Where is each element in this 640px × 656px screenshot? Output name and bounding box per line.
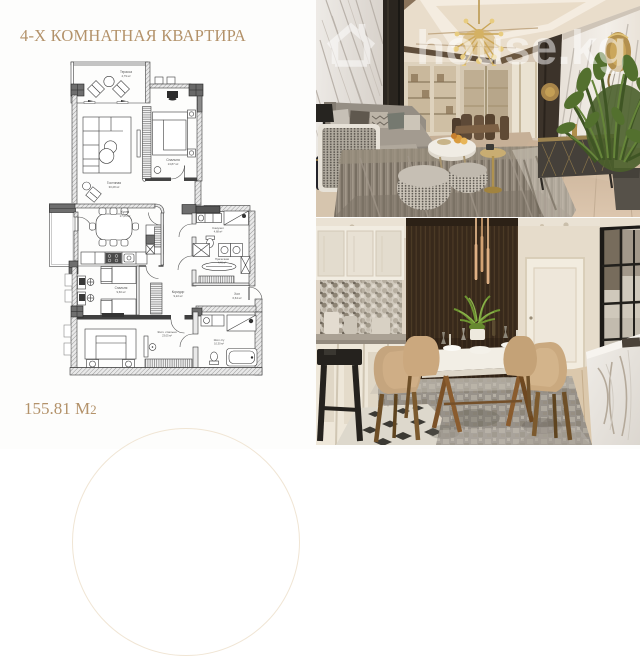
svg-text:house.kg: house.kg — [416, 22, 627, 75]
svg-text:Жил. спальня: Жил. спальня — [157, 330, 177, 334]
svg-text:4,68 м²: 4,68 м² — [214, 230, 223, 234]
svg-text:17,65 м²: 17,65 м² — [120, 214, 131, 218]
svg-text:13,87 м²: 13,87 м² — [168, 162, 179, 166]
svg-text:4,46 м²: 4,46 м² — [218, 261, 226, 264]
svg-text:9,22 м²: 9,22 м² — [173, 294, 182, 298]
svg-text:Прачечная: Прачечная — [215, 257, 230, 261]
svg-text:Жил с/у: Жил с/у — [214, 338, 225, 342]
svg-text:4,79 м²: 4,79 м² — [121, 74, 130, 78]
svg-text:6,64 м²: 6,64 м² — [232, 296, 241, 300]
svg-text:Санузел: Санузел — [212, 226, 224, 230]
svg-text:30,28 м²: 30,28 м² — [109, 185, 120, 189]
svg-text:23,05 м²: 23,05 м² — [162, 334, 172, 338]
svg-text:9,60 м²: 9,60 м² — [116, 290, 125, 294]
svg-text:10,30 м²: 10,30 м² — [214, 342, 224, 346]
